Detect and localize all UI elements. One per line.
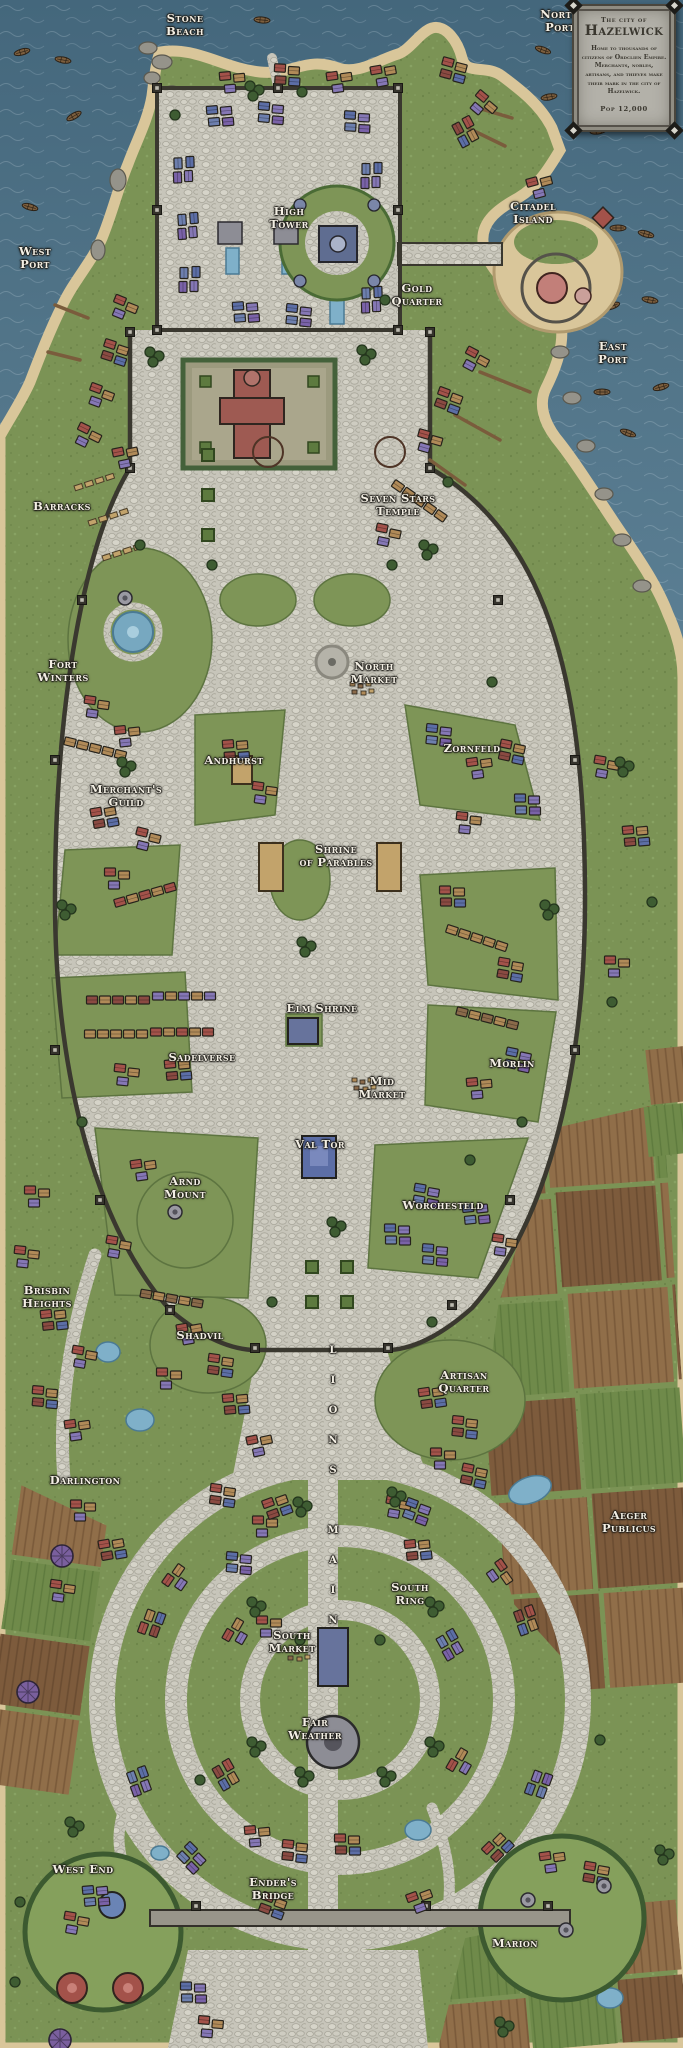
cartouche-population: Pop 12,000 <box>581 105 667 113</box>
cartouche-description: Home to thousands of citizens of Ordclie… <box>581 45 667 97</box>
map-title-cartouche: The city of Hazelwick Home to thousands … <box>572 4 676 132</box>
hazelwick-city-map: Stone Beach North Port West Port Citadel… <box>0 0 683 2048</box>
map-artwork <box>0 0 683 2048</box>
map-title: Hazelwick <box>581 24 667 38</box>
